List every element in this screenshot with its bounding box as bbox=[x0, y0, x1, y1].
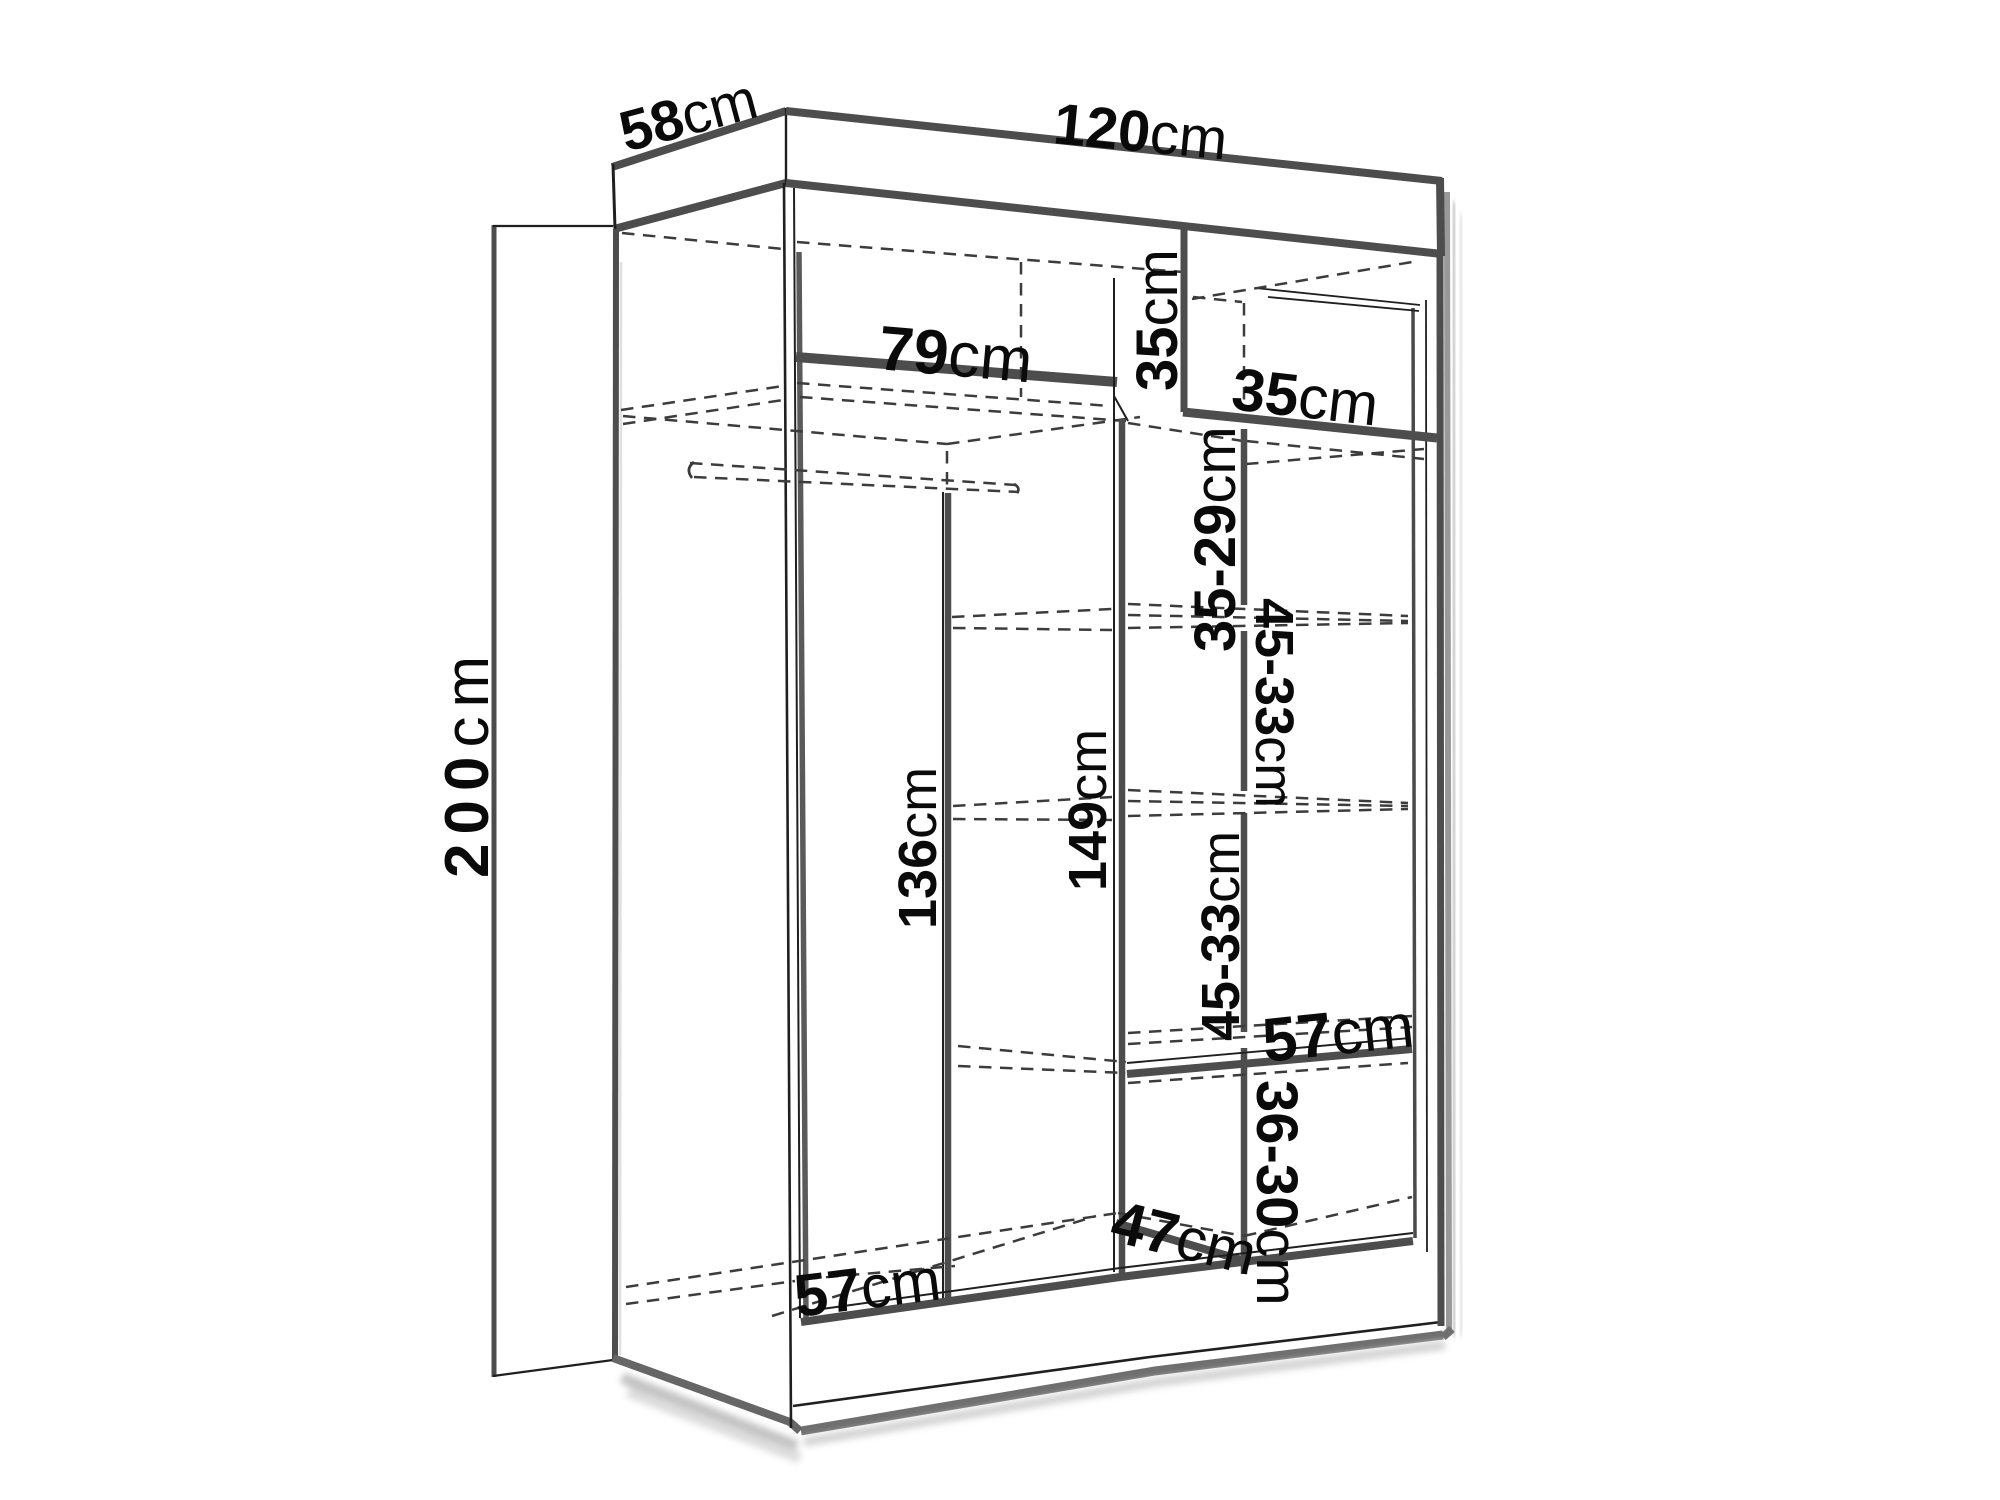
svg-text:36-30cm: 36-30cm bbox=[1244, 1080, 1309, 1306]
svg-text:45-33cm: 45-33cm bbox=[1244, 598, 1304, 808]
svg-text:200cm: 200cm bbox=[433, 647, 502, 878]
svg-text:79cm: 79cm bbox=[876, 313, 1036, 396]
svg-text:149cm: 149cm bbox=[1058, 729, 1118, 891]
svg-text:35-29cm: 35-29cm bbox=[1183, 426, 1248, 652]
svg-text:136cm: 136cm bbox=[888, 767, 948, 929]
svg-text:35cm: 35cm bbox=[1125, 249, 1190, 391]
svg-text:45-33cm: 45-33cm bbox=[1191, 831, 1251, 1041]
